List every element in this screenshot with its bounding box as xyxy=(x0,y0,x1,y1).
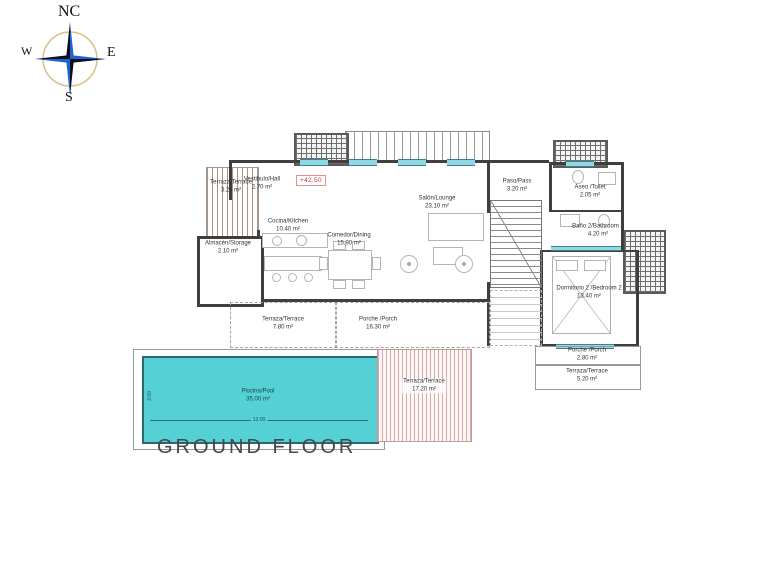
room-label-porch-east: Porche /Porch2.80 m² xyxy=(568,348,606,363)
page-title: GROUND FLOOR xyxy=(157,436,356,459)
room-label-bathroom2: Baño 2/Bathroom 24.20 m² xyxy=(572,224,624,239)
room-label-storage: Almacén/Storage2.10 m² xyxy=(205,241,251,256)
pool-width-dimension: 3.00 xyxy=(147,391,153,401)
room-label-kitchen: Cocina/Kitchen10.40 m² xyxy=(268,219,308,234)
room-label-porch-south: Porche /Porch16.30 m² xyxy=(359,317,397,332)
dining-table xyxy=(328,250,372,280)
toilet-wc xyxy=(572,170,584,184)
pillow xyxy=(556,260,578,271)
dining-chair xyxy=(333,280,346,289)
window xyxy=(551,246,621,251)
toilet-sink xyxy=(598,172,616,185)
window xyxy=(349,159,377,166)
room-label-terrace-poolside: Terraza/Terrace17.20 m² xyxy=(402,379,446,394)
wall-segment xyxy=(549,162,552,212)
kitchen-stool xyxy=(288,273,297,282)
wall-segment xyxy=(229,160,549,163)
pillow xyxy=(584,260,606,271)
compass-west-label: W xyxy=(21,44,32,59)
kitchen-stool xyxy=(304,273,313,282)
room-label-bedroom2: Dormitorio 2 /Bedroom 213.40 m² xyxy=(556,286,621,301)
room-label-toilet: Aseo /Toilet2.05 m² xyxy=(574,185,605,200)
room-label-dining: Comedor/Dining15.90 m² xyxy=(327,233,370,248)
pool-length-dimension: 13.00 xyxy=(251,417,268,423)
wall-segment xyxy=(551,210,621,212)
sofa xyxy=(428,213,484,241)
room-label-hall: Vestibulo/Hall2.70 m² xyxy=(244,177,280,192)
level-marker: +42.50 xyxy=(296,175,326,186)
staircase-lower-flight xyxy=(490,290,542,346)
room-label-lounge: Salón/Lounge23.10 m² xyxy=(418,196,455,211)
window xyxy=(398,159,426,166)
staircase xyxy=(490,200,542,288)
kitchen-hob xyxy=(296,235,307,246)
dining-chair xyxy=(372,257,381,270)
room-label-terrace-east: Terraza/Terrace5.20 m² xyxy=(566,369,608,384)
room-label-pool: Piscina/Pool35.00 m² xyxy=(241,389,274,404)
wall-segment xyxy=(636,250,639,346)
dining-chair xyxy=(352,280,365,289)
trellis-grid-east xyxy=(623,230,666,294)
window xyxy=(566,161,594,167)
compass-east-label: E xyxy=(107,45,116,61)
room-label-pass: Paso/Pass3.20 m² xyxy=(503,179,532,194)
room-label-terrace-south: Terraza/Terrace7.80 m² xyxy=(262,317,304,332)
floor-lamp xyxy=(455,255,473,273)
floor-lamp xyxy=(400,255,418,273)
floor-plan-canvas: NC W E S xyxy=(0,0,768,564)
compass-south-label: S xyxy=(65,90,73,106)
terrace-pool-hatch xyxy=(377,349,472,442)
kitchen-sink xyxy=(272,236,282,246)
compass-rose: NC W E S xyxy=(20,6,120,106)
kitchen-island xyxy=(264,256,322,271)
compass-north-label: NC xyxy=(58,3,80,21)
window xyxy=(300,159,328,166)
kitchen-stool xyxy=(272,273,281,282)
window xyxy=(447,159,475,166)
wall-segment xyxy=(621,162,624,252)
dining-chair xyxy=(319,257,328,270)
upper-stair-strip xyxy=(345,131,490,162)
